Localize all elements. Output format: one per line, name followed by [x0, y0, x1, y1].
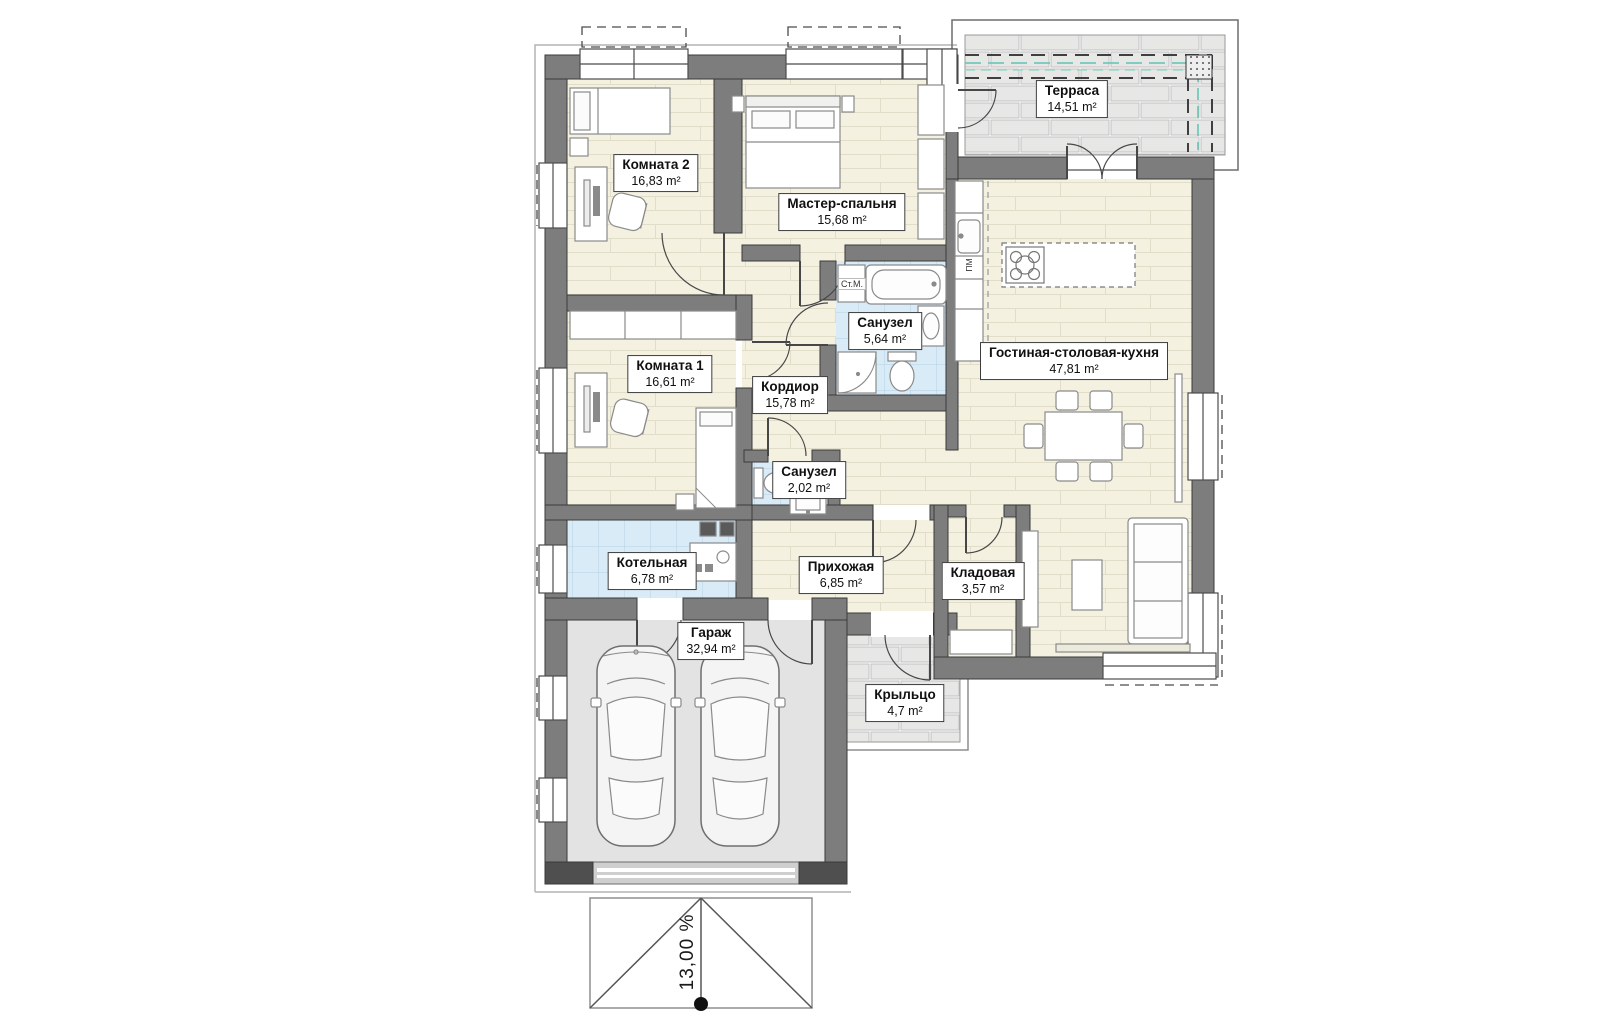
room-name: Котельная — [617, 555, 688, 572]
driveway — [590, 898, 812, 1011]
room-label-terrace: Терраса 14,51 m² — [1036, 80, 1108, 118]
room-label-room1: Комната 1 16,61 m² — [627, 355, 712, 393]
room-name: Крыльцо — [874, 687, 935, 704]
room-area: 15,78 m² — [761, 396, 819, 411]
room-area: 5,64 m² — [857, 332, 913, 347]
room-name: Комната 2 — [622, 157, 689, 174]
room-name: Кордиор — [761, 379, 819, 396]
driveway-slope-label: 13,00 % — [677, 914, 699, 991]
room-label-bath-main: Санузел 5,64 m² — [848, 312, 922, 350]
room-name: Санузел — [781, 464, 837, 481]
room-label-master: Мастер-спальня 15,68 m² — [778, 193, 905, 231]
room-label-storage: Кладовая 3,57 m² — [942, 562, 1025, 600]
room-label-living: Гостиная-столовая-кухня 47,81 m² — [980, 342, 1168, 380]
room-area: 6,85 m² — [808, 576, 875, 591]
room-area: 6,78 m² — [617, 572, 688, 587]
room-area: 3,57 m² — [951, 582, 1016, 597]
room-name: Терраса — [1045, 83, 1099, 100]
room-area: 4,7 m² — [874, 704, 935, 719]
terrace-post — [1186, 55, 1212, 79]
room-area: 47,81 m² — [989, 362, 1159, 377]
room-area: 16,61 m² — [636, 375, 703, 390]
room-area: 14,51 m² — [1045, 100, 1099, 115]
room-name: Комната 1 — [636, 358, 703, 375]
room-name: Прихожая — [808, 559, 875, 576]
room-label-corridor: Кордиор 15,78 m² — [752, 376, 828, 414]
floor-plan: Терраса 14,51 m² Комната 2 16,83 m² Маст… — [0, 0, 1600, 1024]
room-area: 15,68 m² — [787, 213, 896, 228]
room-name: Мастер-спальня — [787, 196, 896, 213]
room-name: Санузел — [857, 315, 913, 332]
room-area: 2,02 m² — [781, 481, 837, 496]
room-label-bath-small: Санузел 2,02 m² — [772, 461, 846, 499]
room-name: Гостиная-столовая-кухня — [989, 345, 1159, 362]
floor-plan-drawing — [0, 0, 1600, 1024]
room-name: Кладовая — [951, 565, 1016, 582]
washing-machine-label: Ст.М. — [838, 278, 866, 290]
room-area: 16,83 m² — [622, 174, 689, 189]
room-area: 32,94 m² — [686, 642, 735, 657]
room-label-garage: Гараж 32,94 m² — [677, 622, 744, 660]
room-label-hall: Прихожая 6,85 m² — [799, 556, 884, 594]
room-label-porch: Крыльцо 4,7 m² — [865, 684, 944, 722]
room-label-room2: Комната 2 16,83 m² — [613, 154, 698, 192]
dishwasher-label: ПМ — [964, 256, 974, 273]
room-label-boiler: Котельная 6,78 m² — [608, 552, 697, 590]
room-name: Гараж — [686, 625, 735, 642]
